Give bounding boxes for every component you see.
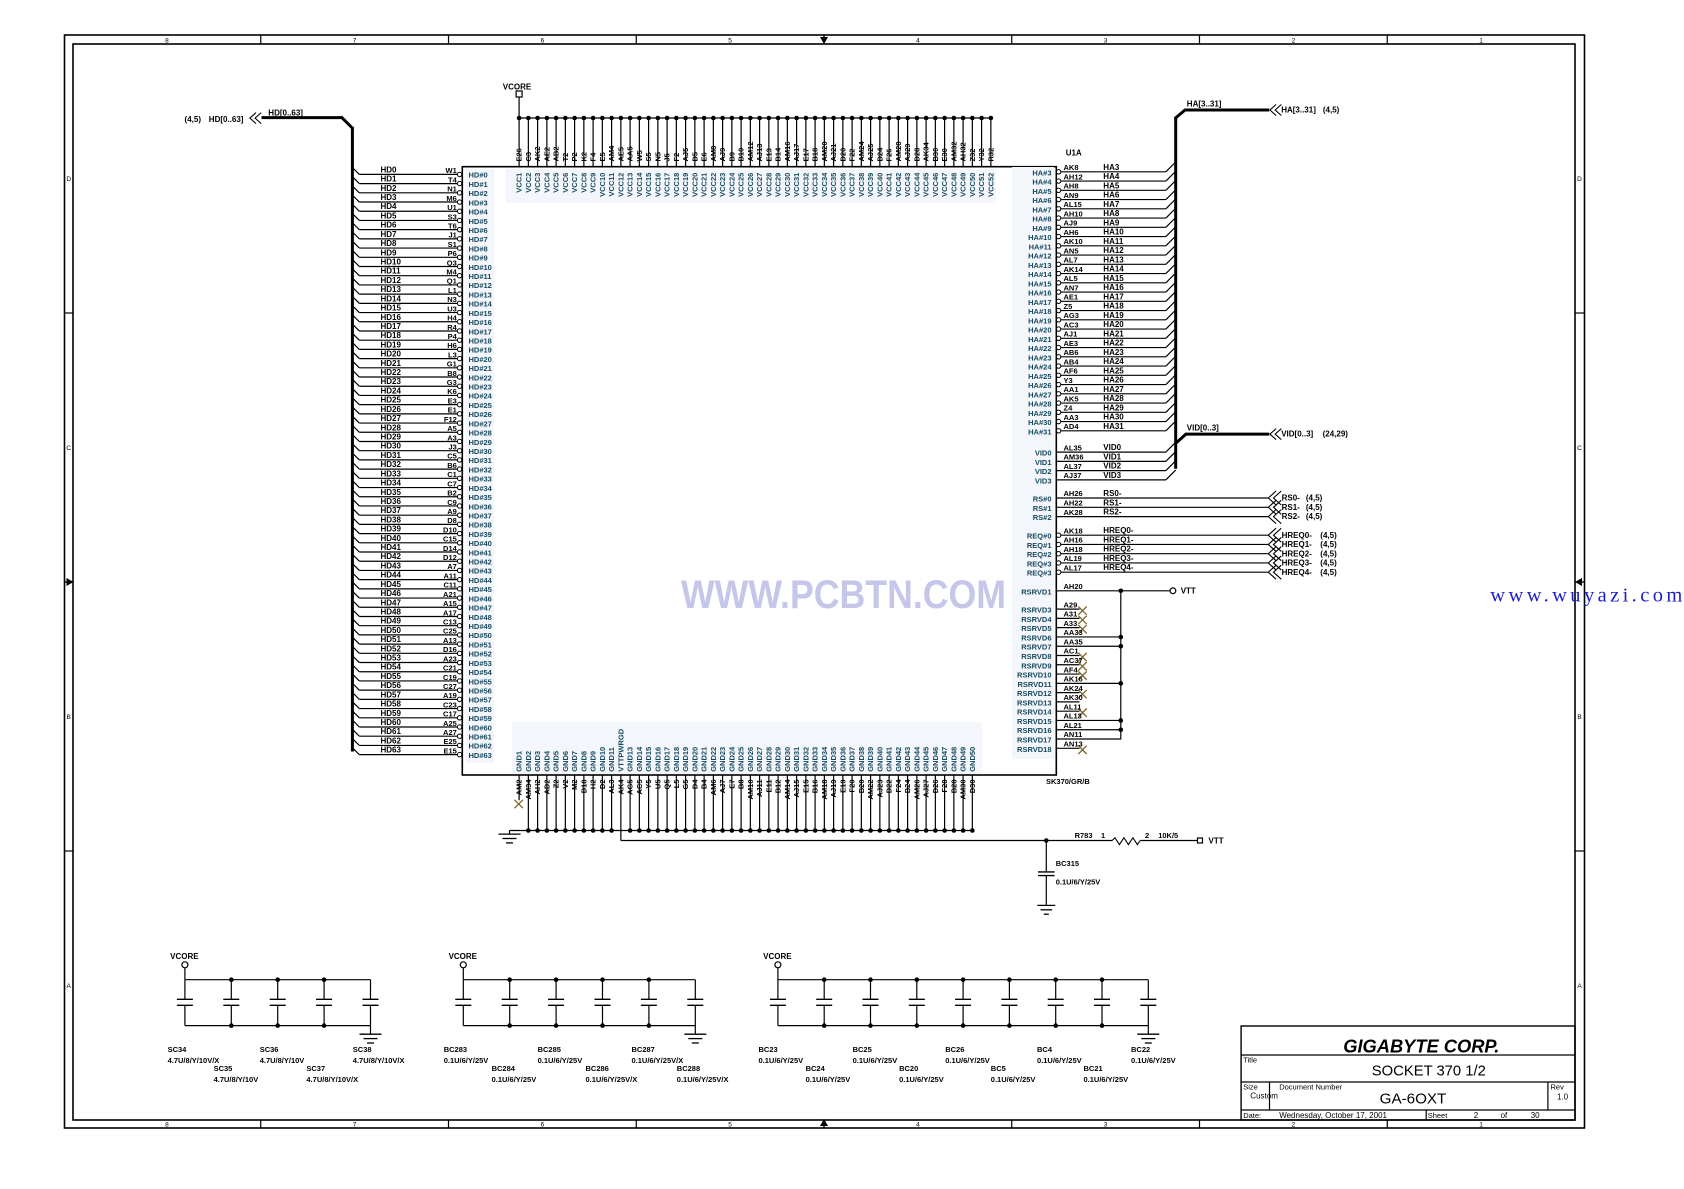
svg-text:HD#45: HD#45 (469, 585, 492, 594)
svg-text:HA27: HA27 (1103, 385, 1124, 394)
svg-text:HD#55: HD#55 (469, 677, 492, 686)
svg-text:2: 2 (1292, 1122, 1296, 1129)
svg-text:HREQ0-: HREQ0- (1282, 531, 1313, 540)
svg-text:HD#40: HD#40 (469, 539, 492, 548)
svg-text:HA7: HA7 (1103, 200, 1120, 209)
svg-text:www.wuyazi.com: www.wuyazi.com (1490, 585, 1684, 607)
svg-text:HD#48: HD#48 (469, 613, 492, 622)
svg-text:GND28: GND28 (764, 747, 773, 772)
svg-text:HREQ2-: HREQ2- (1103, 545, 1134, 554)
svg-text:WWW.PCBTN.COM: WWW.PCBTN.COM (681, 573, 1006, 617)
svg-text:VCC21: VCC21 (700, 173, 709, 197)
svg-text:AA3: AA3 (1064, 413, 1079, 422)
svg-text:VCC8: VCC8 (579, 173, 588, 193)
svg-text:VID[0..3]: VID[0..3] (1187, 424, 1219, 433)
svg-text:0.1U/6/Y/25V: 0.1U/6/Y/25V (1037, 1056, 1082, 1065)
svg-text:6: 6 (541, 1122, 545, 1129)
svg-text:HA21: HA21 (1103, 329, 1124, 338)
svg-text:E19: E19 (838, 780, 847, 793)
svg-text:A21: A21 (443, 590, 457, 599)
svg-text:VCC4: VCC4 (542, 172, 551, 193)
svg-text:GND40: GND40 (875, 747, 884, 772)
svg-text:GND47: GND47 (940, 747, 949, 772)
svg-text:Y3: Y3 (1064, 376, 1073, 385)
svg-text:AL7: AL7 (1064, 256, 1078, 265)
svg-text:HD#2: HD#2 (469, 189, 488, 198)
svg-text:HD#25: HD#25 (469, 401, 492, 410)
svg-text:5: 5 (728, 1122, 732, 1129)
svg-text:B18: B18 (811, 148, 820, 162)
svg-text:SC35: SC35 (214, 1064, 233, 1073)
svg-text:C23: C23 (443, 700, 457, 709)
svg-text:REQ#3: REQ#3 (1027, 569, 1052, 578)
svg-text:HD41: HD41 (381, 543, 402, 552)
svg-text:HD47: HD47 (381, 598, 402, 607)
svg-text:HD#63: HD#63 (469, 751, 492, 760)
svg-text:HA#7: HA#7 (1032, 205, 1051, 214)
svg-text:A25: A25 (443, 719, 457, 728)
svg-text:AJ23: AJ23 (875, 780, 884, 798)
svg-text:RSRVD11: RSRVD11 (1017, 680, 1051, 689)
svg-text:AM30: AM30 (959, 780, 968, 800)
svg-text:F24: F24 (894, 779, 903, 793)
svg-text:HD10: HD10 (381, 258, 402, 267)
svg-text:HD#38: HD#38 (469, 521, 492, 530)
svg-text:HREQ0-: HREQ0- (1103, 526, 1134, 535)
svg-text:AJ1: AJ1 (1064, 330, 1078, 339)
svg-text:RS2-: RS2- (1103, 508, 1122, 517)
svg-text:HD30: HD30 (381, 442, 402, 451)
svg-text:AH16: AH16 (1064, 536, 1083, 545)
svg-text:AM6: AM6 (709, 780, 718, 796)
svg-text:HD#62: HD#62 (469, 742, 492, 751)
svg-text:B: B (1577, 714, 1581, 721)
svg-text:BC21: BC21 (1084, 1064, 1103, 1073)
svg-text:4.7U/8/Y/10V/X: 4.7U/8/Y/10V/X (306, 1075, 358, 1084)
svg-text:W5: W5 (635, 150, 644, 161)
svg-text:VCC6: VCC6 (561, 173, 570, 193)
svg-text:AH6: AH6 (1064, 228, 1079, 237)
svg-text:AM12: AM12 (746, 141, 755, 161)
svg-text:HREQ2-: HREQ2- (1282, 549, 1313, 558)
svg-text:F12: F12 (444, 415, 457, 424)
svg-text:HD#20: HD#20 (469, 355, 492, 364)
svg-text:D14: D14 (443, 544, 458, 553)
svg-text:HD#43: HD#43 (469, 567, 492, 576)
svg-text:RSRVD15: RSRVD15 (1017, 717, 1051, 726)
svg-text:HD12: HD12 (381, 276, 402, 285)
svg-text:VCC20: VCC20 (690, 173, 699, 197)
svg-text:VCC49: VCC49 (959, 173, 968, 197)
svg-text:D8: D8 (447, 516, 457, 525)
svg-text:HA8: HA8 (1103, 209, 1120, 218)
svg-text:P6: P6 (448, 249, 457, 258)
svg-text:AA33: AA33 (1064, 628, 1083, 637)
svg-text:AH32: AH32 (959, 142, 968, 161)
svg-text:HD60: HD60 (381, 718, 402, 727)
svg-text:VCC51: VCC51 (977, 173, 986, 197)
svg-text:A23: A23 (443, 654, 457, 663)
svg-text:B8: B8 (737, 780, 746, 790)
svg-text:GND11: GND11 (607, 747, 616, 772)
svg-text:C: C (66, 445, 71, 452)
svg-text:HA#12: HA#12 (1028, 252, 1051, 261)
svg-text:GND32: GND32 (801, 747, 810, 772)
svg-text:D: D (66, 176, 71, 183)
svg-text:(4,5): (4,5) (1320, 531, 1337, 540)
svg-text:GND49: GND49 (959, 747, 968, 772)
svg-text:AH8: AH8 (1064, 182, 1079, 191)
svg-text:HD1: HD1 (381, 175, 398, 184)
svg-text:AK16: AK16 (1064, 675, 1083, 684)
svg-text:HD15: HD15 (381, 304, 402, 313)
svg-text:HD#49: HD#49 (469, 622, 492, 631)
svg-text:GND48: GND48 (949, 747, 958, 772)
svg-text:RSRVD7: RSRVD7 (1021, 643, 1051, 652)
svg-text:AN9: AN9 (1064, 191, 1079, 200)
svg-text:HA#15: HA#15 (1028, 279, 1051, 288)
svg-text:AD4: AD4 (1064, 422, 1080, 431)
svg-text:Q3: Q3 (447, 258, 457, 267)
svg-text:HD61: HD61 (381, 727, 402, 736)
svg-text:5: 5 (728, 38, 732, 45)
svg-text:HA#16: HA#16 (1028, 289, 1051, 298)
svg-text:GND23: GND23 (718, 747, 727, 772)
svg-text:AL11: AL11 (1064, 702, 1082, 711)
svg-text:W1: W1 (446, 166, 457, 175)
svg-text:J5: J5 (663, 153, 672, 161)
svg-text:Size: Size (1243, 1082, 1258, 1091)
svg-text:AH20: AH20 (1064, 582, 1083, 591)
svg-text:RSRVD17: RSRVD17 (1017, 736, 1051, 745)
svg-text:RSRVD1: RSRVD1 (1021, 587, 1051, 596)
svg-text:GND8: GND8 (579, 751, 588, 772)
svg-text:A5: A5 (447, 424, 457, 433)
svg-text:AJ9: AJ9 (718, 148, 727, 162)
svg-text:HD#10: HD#10 (469, 263, 492, 272)
svg-text:A29: A29 (1064, 600, 1078, 609)
svg-text:C: C (1577, 445, 1582, 452)
svg-text:C27: C27 (443, 682, 457, 691)
svg-text:E15: E15 (801, 780, 810, 793)
svg-text:HA14: HA14 (1103, 265, 1124, 274)
svg-text:A: A (1577, 983, 1582, 990)
svg-text:B16: B16 (811, 780, 820, 794)
svg-text:VCC37: VCC37 (848, 173, 857, 197)
svg-text:VCC19: VCC19 (681, 173, 690, 197)
svg-text:HD27: HD27 (381, 414, 402, 423)
svg-text:AJ25: AJ25 (866, 144, 875, 162)
svg-text:Wednesday, October 17, 2001: Wednesday, October 17, 2001 (1279, 1111, 1387, 1120)
svg-text:HD43: HD43 (381, 561, 402, 570)
svg-text:B24: B24 (903, 779, 912, 794)
svg-text:AM24: AM24 (857, 141, 866, 162)
svg-text:AH18: AH18 (1064, 545, 1083, 554)
svg-text:D10: D10 (443, 525, 457, 534)
svg-text:HD21: HD21 (381, 359, 402, 368)
svg-text:T2: T2 (561, 153, 570, 162)
svg-text:HD#14: HD#14 (469, 300, 493, 309)
svg-text:AN5: AN5 (1064, 246, 1079, 255)
svg-text:AL17: AL17 (1064, 563, 1082, 572)
svg-text:REQ#0: REQ#0 (1027, 532, 1052, 541)
svg-text:A15: A15 (443, 599, 457, 608)
svg-text:(4,5): (4,5) (1306, 503, 1323, 512)
svg-text:HD18: HD18 (381, 331, 402, 340)
svg-text:HD29: HD29 (381, 432, 402, 441)
svg-text:VCC50: VCC50 (968, 173, 977, 197)
svg-text:RSRVD9: RSRVD9 (1021, 661, 1051, 670)
svg-text:VTT: VTT (1209, 836, 1224, 845)
svg-text:HD5: HD5 (381, 211, 398, 220)
svg-text:0.1U/6/Y/25V: 0.1U/6/Y/25V (1056, 878, 1101, 887)
svg-text:AK8: AK8 (1064, 163, 1079, 172)
svg-text:VCC3: VCC3 (533, 173, 542, 193)
svg-text:GND10: GND10 (598, 747, 607, 772)
svg-text:HD#59: HD#59 (469, 714, 492, 723)
svg-text:Y5: Y5 (644, 780, 653, 789)
svg-text:HA#5: HA#5 (1032, 187, 1051, 196)
svg-text:HD48: HD48 (381, 607, 402, 616)
svg-text:VCORE: VCORE (503, 83, 532, 92)
svg-text:1.0: 1.0 (1557, 1093, 1569, 1102)
svg-text:B20: B20 (857, 780, 866, 794)
svg-text:M4: M4 (446, 268, 457, 277)
svg-text:RSRVD5: RSRVD5 (1021, 624, 1051, 633)
svg-text:HREQ1-: HREQ1- (1103, 535, 1134, 544)
svg-text:HREQ1-: HREQ1- (1282, 540, 1313, 549)
svg-text:HD#32: HD#32 (469, 465, 492, 474)
svg-text:GND34: GND34 (820, 746, 829, 772)
svg-text:VCC38: VCC38 (857, 173, 866, 197)
svg-text:VCC40: VCC40 (875, 173, 884, 197)
svg-text:VCC44: VCC44 (912, 172, 921, 197)
svg-text:HD26: HD26 (381, 405, 402, 414)
svg-text:(4,5): (4,5) (1306, 494, 1323, 503)
svg-text:Q5: Q5 (663, 780, 672, 790)
svg-text:U1A: U1A (1066, 149, 1082, 158)
svg-text:GND37: GND37 (848, 747, 857, 772)
svg-text:A13: A13 (443, 636, 457, 645)
svg-text:0.1U/6/Y/25V/X: 0.1U/6/Y/25V/X (677, 1075, 729, 1084)
svg-text:C13: C13 (443, 617, 457, 626)
svg-text:HD#9: HD#9 (469, 254, 488, 263)
svg-text:HD#8: HD#8 (469, 244, 488, 253)
svg-text:(4,5): (4,5) (185, 115, 202, 124)
svg-text:3: 3 (1104, 38, 1108, 45)
svg-text:AE1: AE1 (1064, 293, 1079, 302)
svg-text:B6: B6 (447, 461, 457, 470)
svg-text:8: 8 (165, 1122, 169, 1129)
svg-text:AF4: AF4 (1064, 665, 1079, 674)
svg-text:HD2: HD2 (381, 184, 398, 193)
svg-text:VCC31: VCC31 (792, 173, 801, 197)
svg-text:2: 2 (1145, 831, 1149, 840)
svg-text:HD#51: HD#51 (469, 640, 492, 649)
svg-text:AL5: AL5 (1064, 274, 1078, 283)
svg-text:VCORE: VCORE (449, 952, 478, 961)
svg-text:BC24: BC24 (806, 1064, 826, 1073)
svg-text:(4,5): (4,5) (1320, 559, 1337, 568)
svg-text:HD#57: HD#57 (469, 696, 492, 705)
svg-text:AL37: AL37 (1064, 462, 1082, 471)
svg-text:HD50: HD50 (381, 626, 402, 635)
svg-text:VCC5: VCC5 (552, 173, 561, 193)
svg-text:RSRVD6: RSRVD6 (1021, 633, 1051, 642)
svg-text:U1: U1 (447, 203, 457, 212)
svg-text:VID0: VID0 (1035, 449, 1052, 458)
svg-text:B9: B9 (727, 152, 736, 162)
svg-text:HA30: HA30 (1103, 413, 1124, 422)
svg-text:AB2: AB2 (552, 146, 561, 161)
svg-text:HD54: HD54 (381, 663, 402, 672)
svg-text:SC38: SC38 (353, 1045, 372, 1054)
svg-text:HD17: HD17 (381, 322, 402, 331)
svg-text:VCC7: VCC7 (570, 173, 579, 193)
svg-text:AD2: AD2 (542, 780, 551, 795)
svg-text:D22: D22 (885, 780, 894, 794)
svg-text:BC315: BC315 (1056, 859, 1079, 868)
svg-text:1: 1 (1479, 38, 1483, 45)
svg-text:VCC43: VCC43 (903, 173, 912, 197)
svg-text:HA#28: HA#28 (1028, 400, 1051, 409)
svg-text:0.1U/6/Y/25V: 0.1U/6/Y/25V (1131, 1056, 1176, 1065)
svg-text:HD11: HD11 (381, 267, 402, 276)
svg-text:AK28: AK28 (1064, 508, 1083, 517)
svg-text:HD#18: HD#18 (469, 336, 492, 345)
svg-text:HA22: HA22 (1103, 339, 1124, 348)
svg-text:HD#22: HD#22 (469, 373, 492, 382)
svg-text:K2: K2 (579, 152, 588, 162)
svg-text:B28: B28 (949, 780, 958, 794)
svg-text:R32: R32 (986, 148, 995, 162)
svg-text:RSRVD13: RSRVD13 (1017, 698, 1051, 707)
svg-text:HREQ3-: HREQ3- (1103, 554, 1134, 563)
svg-text:HD24: HD24 (381, 386, 402, 395)
svg-text:AM18: AM18 (820, 780, 829, 800)
svg-text:HD#53: HD#53 (469, 659, 492, 668)
svg-text:HD31: HD31 (381, 451, 402, 460)
svg-text:AM36: AM36 (1064, 453, 1084, 462)
svg-text:HD9: HD9 (381, 248, 398, 257)
svg-text:GND39: GND39 (866, 747, 875, 772)
svg-text:GND46: GND46 (931, 747, 940, 772)
svg-text:H4: H4 (447, 314, 457, 323)
svg-text:AJ29: AJ29 (903, 144, 912, 162)
svg-text:HD44: HD44 (381, 571, 402, 580)
svg-text:GND22: GND22 (709, 747, 718, 772)
svg-text:VCC35: VCC35 (829, 173, 838, 197)
svg-text:HD45: HD45 (381, 580, 402, 589)
svg-text:HA#23: HA#23 (1028, 353, 1051, 362)
svg-text:U3: U3 (447, 304, 457, 313)
svg-text:HD63: HD63 (381, 746, 402, 755)
svg-text:HD#54: HD#54 (469, 668, 493, 677)
svg-text:HD#7: HD#7 (469, 235, 488, 244)
svg-text:VCC42: VCC42 (894, 173, 903, 197)
svg-text:HA#6: HA#6 (1032, 196, 1051, 205)
svg-text:HD52: HD52 (381, 644, 402, 653)
svg-text:HA#22: HA#22 (1028, 344, 1051, 353)
svg-text:VCC52: VCC52 (986, 173, 995, 197)
svg-text:REQ#3: REQ#3 (1027, 559, 1052, 568)
svg-text:HA17: HA17 (1103, 292, 1124, 301)
svg-text:VCC2: VCC2 (524, 173, 533, 193)
svg-text:AM2: AM2 (515, 780, 524, 796)
svg-text:AM34: AM34 (524, 779, 533, 800)
svg-text:RSRVD14: RSRVD14 (1017, 708, 1052, 717)
svg-text:GND33: GND33 (811, 747, 820, 772)
svg-text:BC286: BC286 (586, 1064, 609, 1073)
svg-text:GND17: GND17 (663, 747, 672, 772)
svg-text:AG5: AG5 (626, 780, 635, 795)
svg-text:E7: E7 (727, 780, 736, 789)
svg-text:HD#15: HD#15 (469, 309, 492, 318)
svg-text:J1: J1 (448, 231, 456, 240)
svg-text:HD7: HD7 (381, 230, 398, 239)
svg-text:C3: C3 (524, 152, 533, 162)
svg-text:D5: D5 (690, 152, 699, 162)
svg-text:1: 1 (1101, 831, 1105, 840)
svg-text:VCC32: VCC32 (801, 173, 810, 197)
svg-text:HD16: HD16 (381, 313, 402, 322)
svg-text:AJ37: AJ37 (1064, 471, 1082, 480)
svg-text:0.1U/6/Y/25V: 0.1U/6/Y/25V (492, 1075, 537, 1084)
svg-text:VCORE: VCORE (170, 952, 199, 961)
svg-text:HA26: HA26 (1103, 376, 1124, 385)
svg-text:VID[0..3]: VID[0..3] (1281, 430, 1313, 439)
svg-text:RS1-: RS1- (1103, 498, 1122, 507)
svg-text:RS#1: RS#1 (1033, 504, 1052, 513)
svg-text:AM26: AM26 (912, 780, 921, 800)
svg-text:7: 7 (353, 1122, 357, 1129)
svg-text:AB6: AB6 (1064, 348, 1079, 357)
svg-text:VCC28: VCC28 (764, 173, 773, 197)
svg-text:AL19: AL19 (1064, 554, 1082, 563)
svg-text:L5: L5 (672, 780, 681, 789)
svg-text:HD3: HD3 (381, 193, 398, 202)
svg-text:HD#12: HD#12 (469, 281, 492, 290)
svg-text:GA-6OXT: GA-6OXT (1380, 1090, 1447, 1107)
svg-text:GND1: GND1 (515, 751, 524, 772)
svg-text:K6: K6 (447, 387, 457, 396)
svg-text:H2: H2 (589, 780, 598, 790)
svg-text:Rev: Rev (1551, 1082, 1565, 1091)
svg-text:30: 30 (1531, 1111, 1540, 1120)
svg-text:D12: D12 (443, 553, 457, 562)
svg-text:HD#1: HD#1 (469, 180, 488, 189)
svg-text:RSRVD4: RSRVD4 (1021, 615, 1052, 624)
svg-text:Title: Title (1243, 1055, 1257, 1064)
svg-text:HA#18: HA#18 (1028, 307, 1051, 316)
svg-text:AM22: AM22 (866, 780, 875, 800)
svg-text:VID0: VID0 (1103, 443, 1121, 452)
svg-text:HD0: HD0 (381, 165, 398, 174)
svg-text:D28: D28 (912, 148, 921, 162)
svg-text:HD#0: HD#0 (469, 171, 488, 180)
svg-text:SOCKET 370 1/2: SOCKET 370 1/2 (1372, 1063, 1486, 1079)
svg-text:AH22: AH22 (1064, 499, 1083, 508)
svg-text:4.7U/8/Y/10V: 4.7U/8/Y/10V (214, 1075, 259, 1084)
svg-text:AK10: AK10 (1064, 237, 1083, 246)
svg-text:HD36: HD36 (381, 497, 402, 506)
svg-text:BC287: BC287 (632, 1045, 655, 1054)
svg-text:T6: T6 (448, 221, 457, 230)
svg-text:AM32: AM32 (949, 141, 958, 161)
svg-text:HD#41: HD#41 (469, 548, 492, 557)
svg-text:VCC36: VCC36 (838, 173, 847, 197)
svg-text:HA5: HA5 (1103, 181, 1120, 190)
